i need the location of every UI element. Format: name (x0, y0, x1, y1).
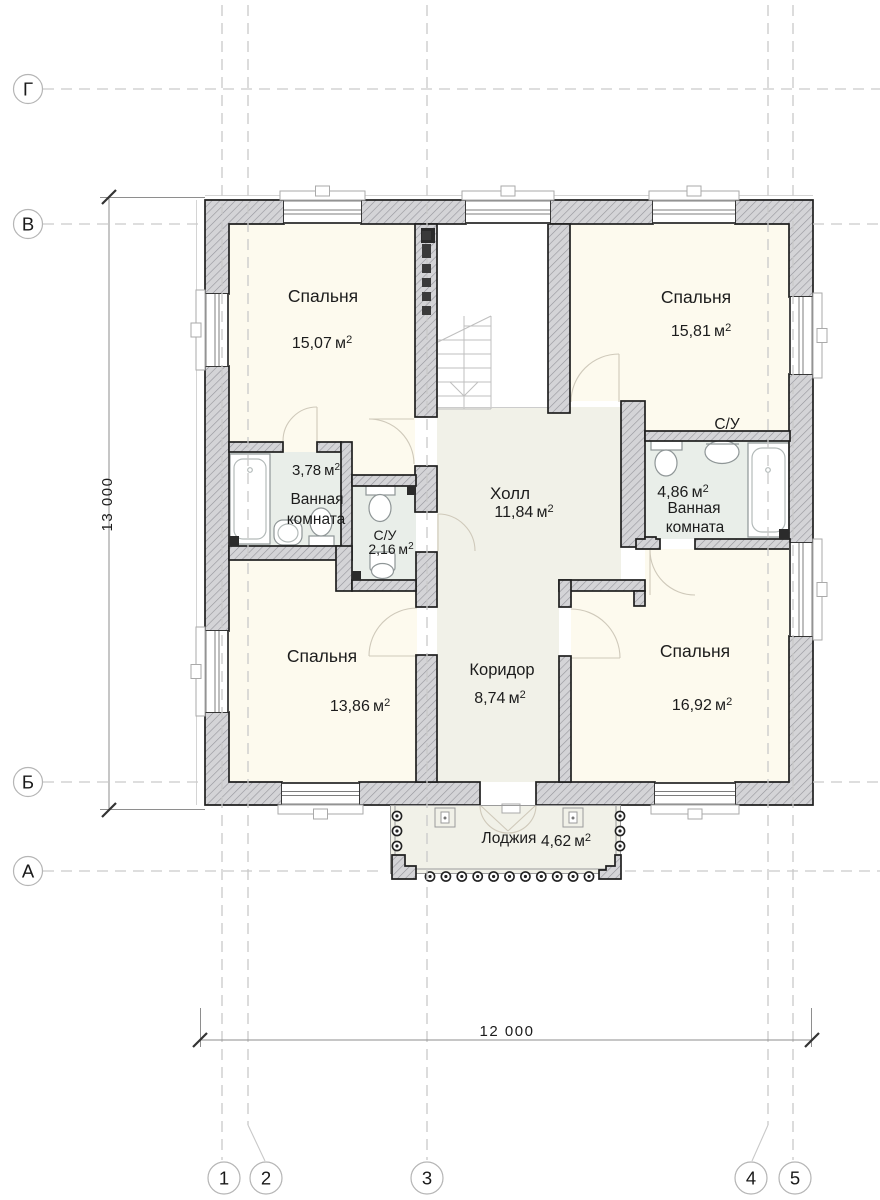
svg-text:11,84 м2: 11,84 м2 (494, 503, 553, 521)
svg-text:А: А (22, 861, 35, 882)
svg-text:Спальня: Спальня (288, 286, 358, 306)
svg-text:Спальня: Спальня (287, 646, 357, 666)
svg-text:Холл: Холл (490, 484, 530, 503)
svg-text:В: В (22, 214, 34, 235)
svg-text:Спальня: Спальня (660, 641, 730, 661)
svg-text:8,74 м2: 8,74 м2 (474, 689, 525, 707)
svg-text:2,16 м2: 2,16 м2 (368, 541, 414, 557)
svg-text:3,78 м2: 3,78 м2 (292, 462, 341, 479)
svg-text:Спальня: Спальня (661, 287, 731, 307)
svg-text:13,86 м2: 13,86 м2 (330, 697, 390, 715)
svg-text:Б: Б (22, 772, 34, 793)
svg-text:4,86 м2: 4,86 м2 (657, 483, 708, 501)
svg-text:15,07 м2: 15,07 м2 (292, 334, 352, 352)
svg-text:2: 2 (261, 1168, 271, 1189)
svg-text:16,92 м2: 16,92 м2 (672, 696, 732, 714)
svg-text:Г: Г (23, 79, 33, 100)
svg-text:Ванная: Ванная (290, 491, 343, 508)
svg-text:4: 4 (746, 1168, 756, 1189)
svg-text:3: 3 (422, 1168, 432, 1189)
svg-text:комната: комната (287, 511, 346, 528)
svg-text:Лоджия: Лоджия (482, 830, 537, 847)
svg-text:4,62 м2: 4,62 м2 (541, 832, 591, 850)
svg-text:5: 5 (790, 1168, 800, 1189)
svg-text:15,81 м2: 15,81 м2 (671, 322, 731, 340)
svg-text:13 000: 13 000 (99, 477, 116, 532)
svg-text:12 000: 12 000 (480, 1023, 535, 1040)
svg-text:Коридор: Коридор (469, 661, 534, 679)
svg-text:С/У: С/У (714, 416, 740, 433)
svg-text:Ванная: Ванная (667, 500, 720, 517)
svg-text:1: 1 (219, 1168, 229, 1189)
svg-text:комната: комната (666, 519, 725, 536)
